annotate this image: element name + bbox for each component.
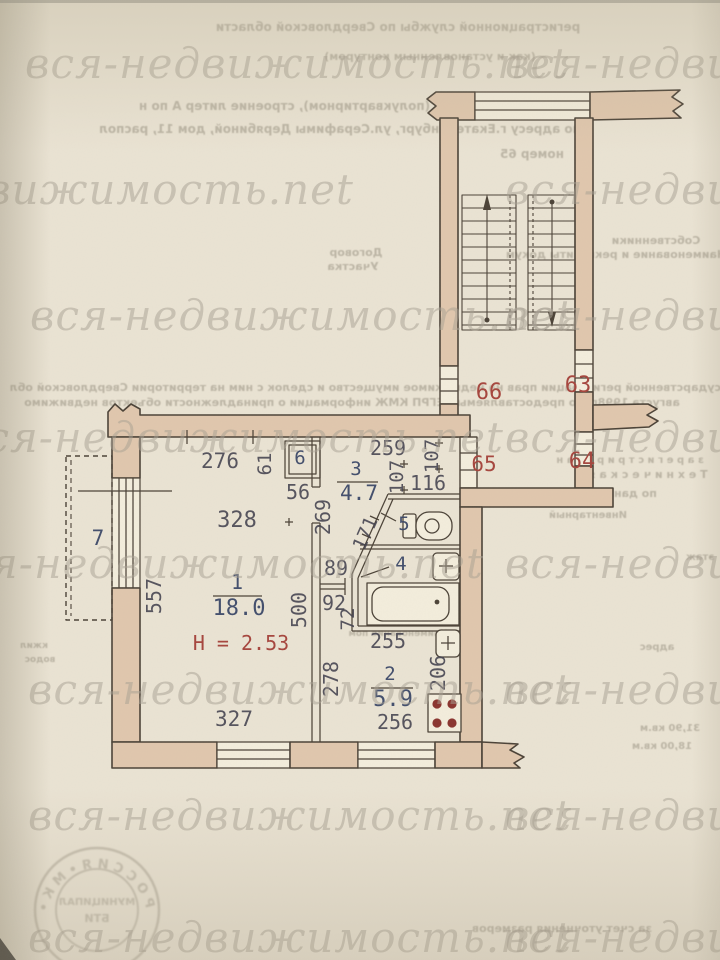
floor-plan-scene: регистрационной службы по Свердловской о… (0, 0, 720, 960)
photo-grain (0, 0, 720, 960)
photographed-floor-plan-page: регистрационной службы по Свердловской о… (0, 0, 720, 960)
